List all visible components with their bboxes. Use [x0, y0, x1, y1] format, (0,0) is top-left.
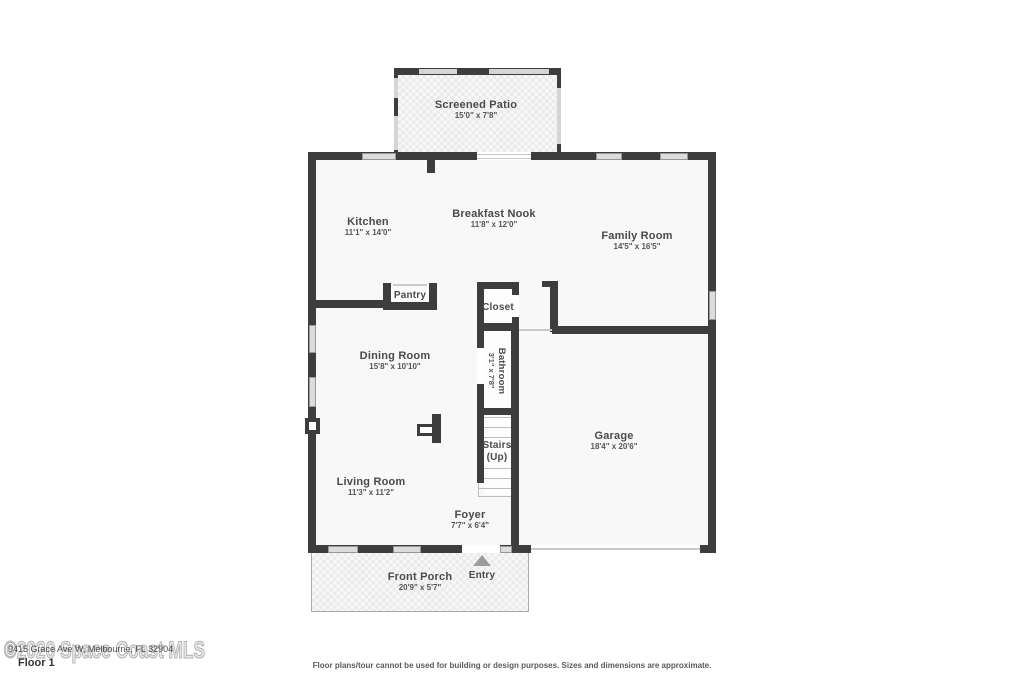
property-address: 9415 Grace Ave W, Melbourne, FL 32904 [8, 644, 173, 654]
floor-plan-image: Screened Patio 15'0" x 7'8" Kitchen 11'1… [0, 0, 1024, 683]
room-dims: 11'8" x 12'0" [452, 220, 536, 230]
room-dims: 7'7" x 6'4" [451, 521, 489, 531]
room-dims: 15'0" x 7'8" [435, 111, 517, 121]
family-room-door-line [519, 329, 552, 331]
room-name: Screened Patio [435, 99, 517, 111]
room-label-breakfast-nook: Breakfast Nook 11'8" x 12'0" [452, 208, 536, 230]
wall-kitchen-stub [427, 160, 435, 173]
room-name: Foyer [451, 509, 489, 521]
room-dims: (Up) [483, 452, 512, 464]
room-dims: 14'5" x 16'5" [601, 242, 672, 252]
disclaimer-text: Floor plans/tour cannot be used for buil… [0, 661, 1024, 670]
patio-screen [557, 88, 561, 144]
room-label-pantry: Pantry [394, 290, 426, 302]
wall-kitchen-dining [308, 300, 391, 308]
patio-screen [419, 69, 457, 74]
room-name: Living Room [337, 476, 406, 488]
wall-hall-stub-cap [542, 281, 558, 287]
window [596, 153, 622, 160]
patio-slider-line [477, 154, 531, 155]
room-name: Dining Room [360, 350, 431, 362]
patio-screen [394, 78, 398, 98]
patio-slider-line [477, 158, 531, 159]
room-label-foyer: Foyer 7'7" x 6'4" [451, 509, 489, 531]
room-name: Front Porch [388, 571, 453, 583]
room-dims: 11'1" x 14'0" [345, 228, 392, 238]
stair-landing-edge [478, 483, 479, 497]
room-label-garage: Garage 18'4" x 20'6" [591, 430, 638, 452]
left-wall-jut-slot [309, 422, 316, 430]
stair-step [479, 488, 511, 489]
wall-pantry-bottom [383, 302, 437, 310]
room-name: Kitchen [345, 216, 392, 228]
room-name: Breakfast Nook [452, 208, 536, 220]
window [328, 546, 358, 553]
stair-step [478, 496, 511, 497]
room-label-dining-room: Dining Room 15'8" x 10'10" [360, 350, 431, 372]
room-label-front-porch: Front Porch 20'9" x 5'7" [388, 571, 453, 593]
room-dims: 18'4" x 20'6" [591, 442, 638, 452]
room-dims: 20'9" x 5'7" [388, 583, 453, 593]
window [309, 325, 316, 353]
patio-screen [394, 116, 398, 150]
entry-arrow-icon [473, 555, 491, 566]
room-label-screened-patio: Screened Patio 15'0" x 7'8" [435, 99, 517, 121]
room-dims: 11'3" x 11'2" [337, 488, 406, 498]
room-name: Pantry [394, 290, 426, 302]
room-label-kitchen: Kitchen 11'1" x 14'0" [345, 216, 392, 238]
room-label-living-room: Living Room 11'3" x 11'2" [337, 476, 406, 498]
room-dims: 3'1" x 7'8" [487, 348, 496, 394]
room-label-closet: Closet [482, 302, 514, 314]
pantry-door-line [393, 284, 427, 286]
room-label-entry: Entry [469, 570, 496, 582]
wall-family-garage [552, 326, 716, 334]
garage-door-line [531, 548, 700, 550]
room-name: Bathroom [496, 348, 507, 394]
window [660, 153, 688, 160]
front-door-opening [462, 545, 500, 553]
room-name: Garage [591, 430, 638, 442]
window [709, 291, 716, 320]
room-divider-niche-v [432, 414, 441, 443]
room-label-stairs: Stairs (Up) [483, 440, 512, 464]
room-name: Entry [469, 570, 496, 582]
wall-hall-stub [550, 281, 558, 332]
room-name: Closet [482, 302, 514, 314]
room-dims: 15'8" x 10'10" [360, 362, 431, 372]
wall-garage-left [511, 326, 519, 553]
room-label-family-room: Family Room 14'5" x 16'5" [601, 230, 672, 252]
room-divider-niche-slot [420, 427, 432, 433]
bath-door-gap [477, 348, 484, 384]
room-name: Family Room [601, 230, 672, 242]
patio-screen [489, 69, 549, 74]
window [362, 153, 396, 160]
window [500, 546, 512, 553]
window [393, 546, 421, 553]
wall-right [708, 152, 716, 553]
room-label-bathroom: Bathroom 3'1" x 7'8" [487, 348, 507, 394]
window [309, 377, 316, 407]
room-name: Stairs [483, 440, 512, 452]
